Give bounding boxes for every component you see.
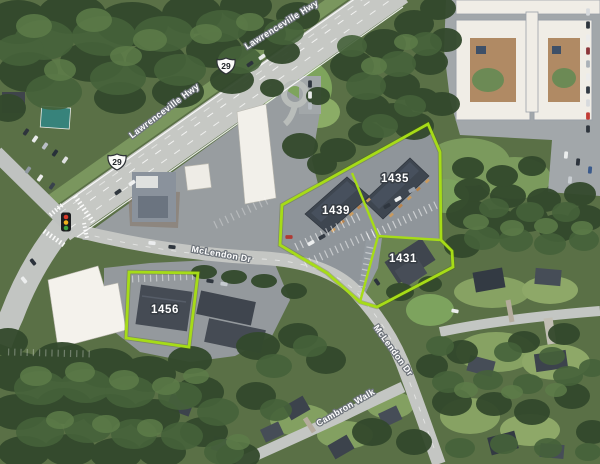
map-canvas[interactable]: 29 29 Lawrenceville Hwy Lawrenceville Hw… <box>0 0 600 464</box>
satellite-map-view[interactable]: 29 29 Lawrenceville Hwy Lawrenceville Hw… <box>0 0 600 464</box>
parcel-label-1431[interactable]: 1431 <box>389 253 417 265</box>
route-shield-number: 29 <box>221 61 231 71</box>
traffic-light-icon <box>61 213 71 232</box>
parcel-label-1435[interactable]: 1435 <box>381 173 409 185</box>
parcel-label-1439[interactable]: 1439 <box>322 205 350 217</box>
route-shield-number: 29 <box>112 157 122 167</box>
parcel-label-1456[interactable]: 1456 <box>151 304 179 316</box>
